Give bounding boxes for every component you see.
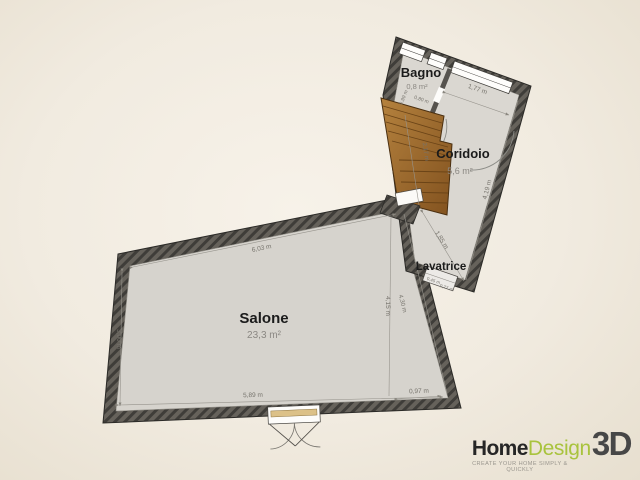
logo-home-text: Home bbox=[472, 438, 528, 459]
dim-salone-bottom: 5,89 m bbox=[243, 392, 263, 399]
dim-salone-bottom-right: 0,97 m bbox=[409, 388, 429, 396]
coridoio-label: Coridoio bbox=[436, 146, 489, 161]
logo-3d-text: 3D bbox=[592, 427, 631, 460]
bagno-label: Bagno bbox=[401, 65, 442, 80]
door-swing-arc-right bbox=[294, 422, 320, 448]
staircase[interactable] bbox=[380, 98, 452, 224]
logo-design-text: Design bbox=[528, 438, 591, 459]
salone-label: Salone bbox=[239, 310, 288, 327]
dim-salone-right: 4,15 m bbox=[384, 296, 391, 316]
lavatrice-label: Lavatrice bbox=[416, 261, 467, 273]
salone-entry-door[interactable] bbox=[268, 405, 322, 449]
logo-tagline: CREATE YOUR HOME SIMPLY & QUICKLY bbox=[472, 461, 568, 473]
homedesign3d-logo: Home Design 3D CREATE YOUR HOME SIMPLY &… bbox=[472, 427, 631, 473]
salone-area: 23,3 m² bbox=[247, 330, 282, 341]
bagno-area: 0,8 m² bbox=[406, 82, 428, 91]
dim-salone-left: 3,00 m bbox=[115, 329, 122, 349]
logo-wordmark: Home Design 3D bbox=[472, 427, 631, 460]
coridoio-area: 5,6 m² bbox=[447, 166, 473, 176]
homedesign3d-plan-view: 6,03 m 3,00 m 5,89 m 4,15 m 4,30 m 0,97 … bbox=[0, 0, 640, 480]
floor-plan-canvas: 6,03 m 3,00 m 5,89 m 4,15 m 4,30 m 0,97 … bbox=[0, 0, 640, 480]
